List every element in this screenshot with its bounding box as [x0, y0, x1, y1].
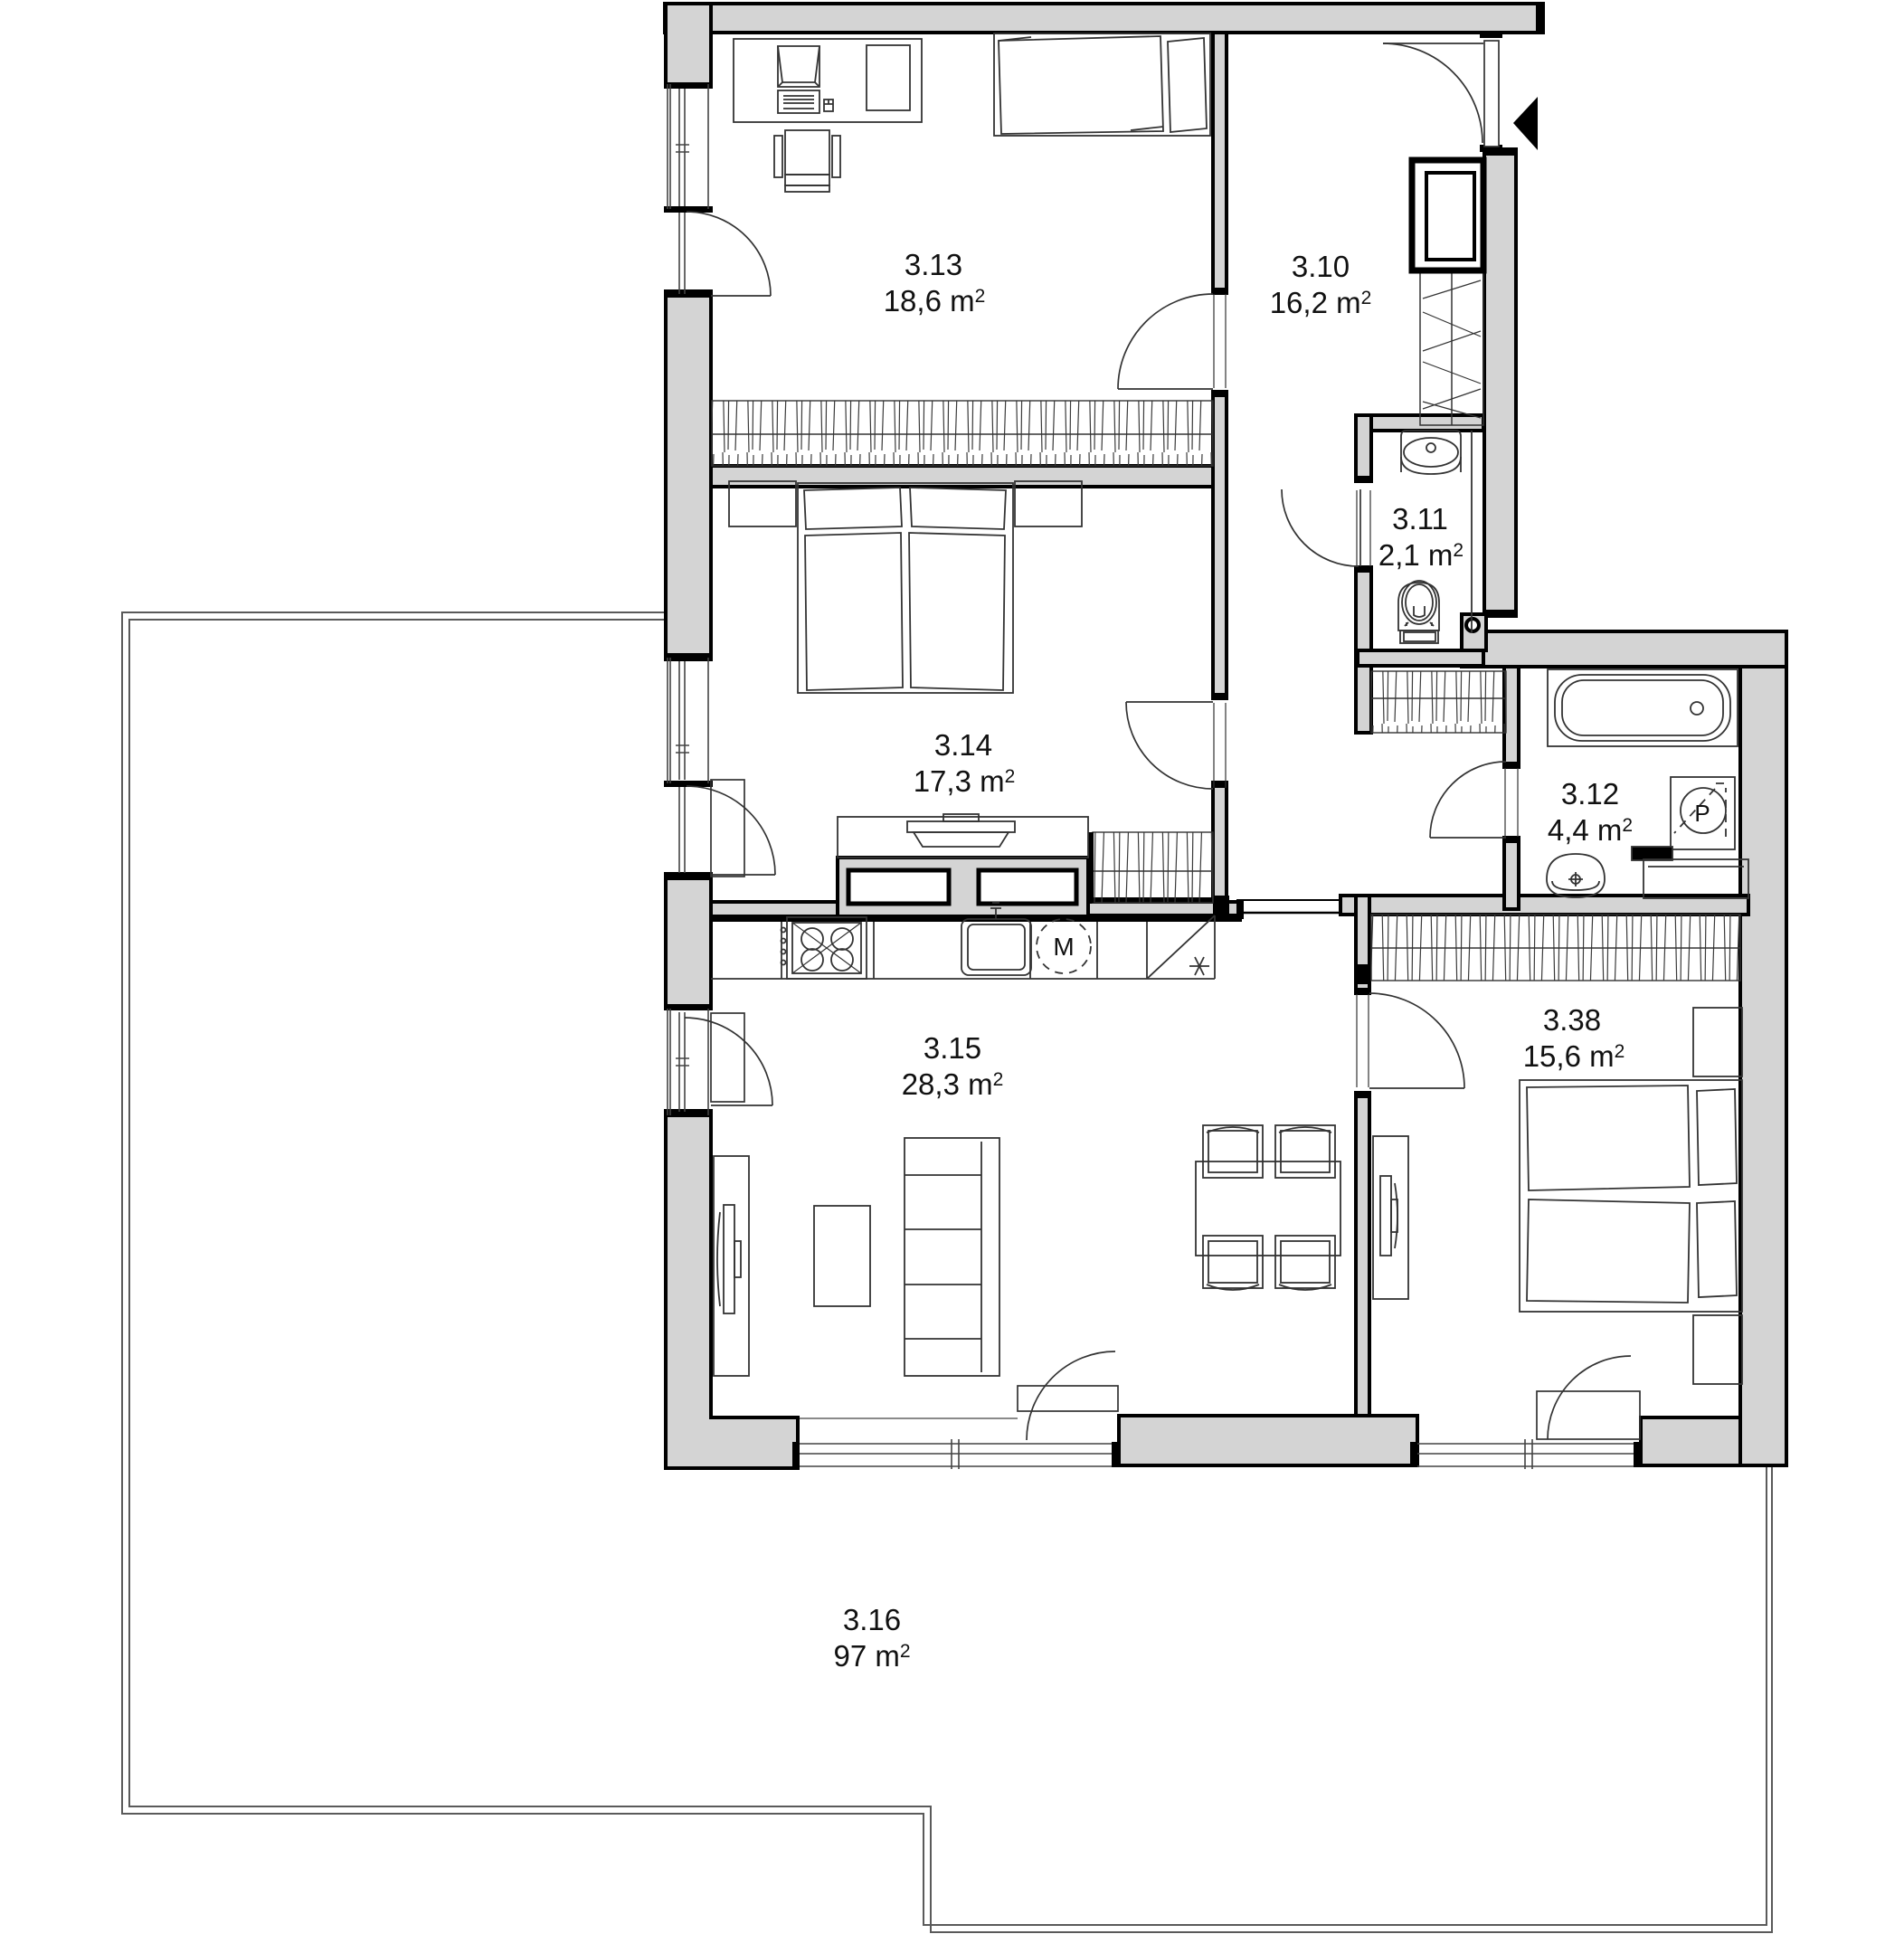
svg-text:3.12: 3.12	[1561, 777, 1619, 811]
svg-text:3.11: 3.11	[1392, 502, 1448, 536]
svg-text:17,3 m2: 17,3 m2	[914, 764, 1016, 798]
svg-text:4,4 m2: 4,4 m2	[1548, 813, 1633, 847]
svg-text:M: M	[1053, 933, 1074, 961]
svg-text:28,3 m2: 28,3 m2	[902, 1067, 1004, 1101]
svg-text:15,6 m2: 15,6 m2	[1523, 1039, 1625, 1073]
svg-text:3.13: 3.13	[905, 248, 962, 281]
svg-text:18,6 m2: 18,6 m2	[884, 284, 986, 318]
svg-text:3.10: 3.10	[1292, 250, 1350, 283]
svg-text:3.38: 3.38	[1543, 1003, 1601, 1037]
svg-text:2,1 m2: 2,1 m2	[1378, 538, 1464, 572]
svg-text:97 m2: 97 m2	[833, 1639, 910, 1673]
svg-text:3.16: 3.16	[843, 1603, 901, 1636]
svg-text:3.14: 3.14	[934, 728, 992, 762]
svg-text:16,2 m2: 16,2 m2	[1270, 286, 1372, 319]
svg-text:P: P	[1694, 800, 1710, 827]
svg-text:3.15: 3.15	[924, 1031, 981, 1065]
